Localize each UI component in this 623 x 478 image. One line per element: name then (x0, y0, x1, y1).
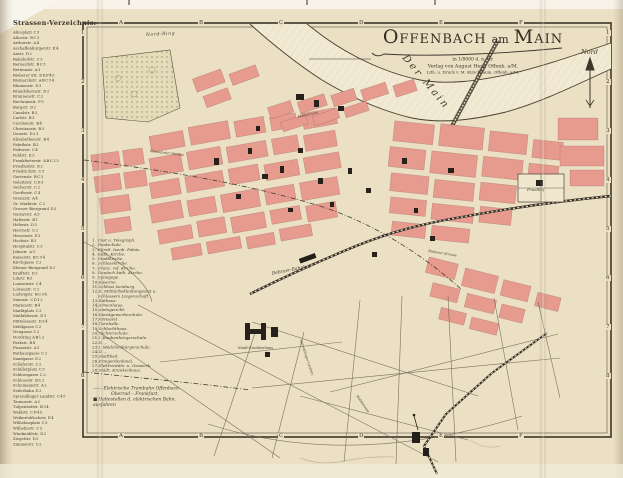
scanned-map-sheet: Der Main Nord-Ring Bebraer-Bahnhof Stadt… (0, 0, 623, 478)
grid-letter: D (358, 20, 364, 26)
north-arrow-icon (586, 58, 594, 108)
grid-letter: F (518, 433, 524, 439)
friedhof-label: Friedhof (526, 187, 546, 192)
sprendlinger-label: Sprendlinger Landstr. (299, 339, 314, 376)
title-block: Offenbach am Main in 1/8000 d. n. Gr. Ve… (368, 26, 578, 92)
map-scale: in 1/8000 d. n. Gr. (368, 57, 578, 62)
grid-number: 3 (605, 128, 611, 134)
park-area (102, 50, 180, 122)
tram-note: —·— Elektrische Trambahn Offenbach- Ober… (93, 386, 253, 430)
tram-note-line4: ausfahren (93, 403, 253, 409)
street-index-entry: Zimmerstr.C2 (13, 442, 97, 447)
grid-number: 5 (605, 226, 611, 232)
bieberer-str-label: Bieberer Strasse (427, 249, 457, 258)
legend-list: 1.Post u. Telegraph.2.Realschule.3.Fürst… (92, 238, 180, 373)
street-index-title: Strassen-Verzeichnis: (13, 19, 97, 27)
pencil-marks (300, 440, 500, 463)
grid-letter: E (438, 433, 444, 439)
grid-letter: A (118, 20, 124, 26)
grid-number: 1 (605, 30, 611, 36)
legend-item: 28.Städt. Krankenhaus. (92, 368, 180, 373)
waldstr-label: Waldstrasse (355, 394, 370, 413)
grid-letter: C (278, 20, 284, 26)
map-title-part3: Main (514, 26, 563, 48)
grid-letter: D (358, 433, 364, 439)
legend: 1.Post u. Telegraph.2.Realschule.3.Fürst… (92, 238, 180, 478)
street-index: Strassen-Verzeichnis: AliceplatzC3Alices… (13, 19, 97, 478)
nordring-label: Nord-Ring (145, 30, 175, 38)
grid-letter: B (198, 433, 204, 439)
grid-number: 2 (605, 79, 611, 85)
grid-number: 6 (605, 275, 611, 281)
grid-letter: B (198, 20, 204, 26)
railway-bebraer (250, 196, 611, 294)
compass-label: Nord (580, 48, 598, 56)
grid-number: 8 (605, 373, 611, 379)
grid-letter: C (278, 433, 284, 439)
map-title-part1: Offenbach (383, 26, 487, 48)
street-index-list: AliceplatzC3Alicestr.BC3Arthurstr.A4Asch… (13, 30, 97, 447)
grid-number: 4 (605, 177, 611, 183)
map-title: Offenbach am Main (368, 26, 578, 48)
publisher-line: Verlag von August Hess, Offenb. a/M. (368, 64, 578, 70)
map-title-part2: am (492, 33, 509, 46)
krankenhaus-label: Stadt-Krankenhaus (238, 346, 273, 350)
grid-number: 7 (605, 324, 611, 330)
printer-line: Lith. u. Druck v. M. Kirschbaum, Offenb.… (368, 70, 578, 75)
